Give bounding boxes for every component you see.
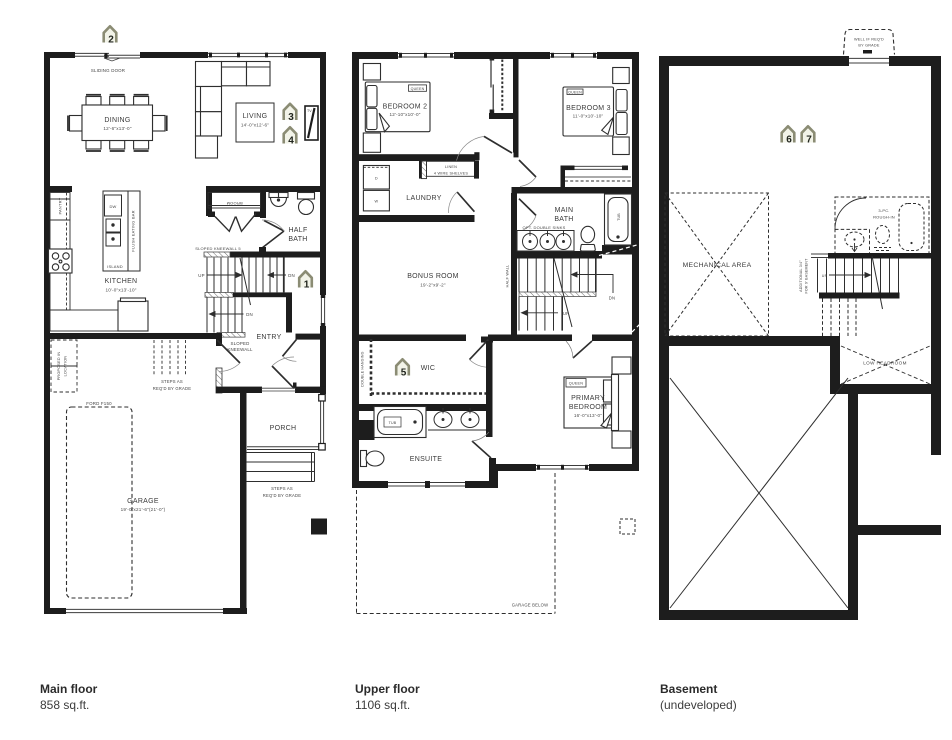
svg-text:GARAGE BELOW: GARAGE BELOW bbox=[512, 603, 549, 608]
svg-text:SLOPED: SLOPED bbox=[230, 341, 249, 346]
svg-text:HALF WALL: HALF WALL bbox=[506, 265, 510, 288]
svg-text:SLOPED KNEEWALL 5: SLOPED KNEEWALL 5 bbox=[195, 246, 241, 251]
svg-text:BEDROOM 2: BEDROOM 2 bbox=[383, 104, 428, 111]
svg-text:BONUS ROOM: BONUS ROOM bbox=[407, 273, 459, 280]
svg-text:ISLAND: ISLAND bbox=[107, 264, 123, 269]
svg-text:W: W bbox=[375, 200, 379, 204]
svg-text:FORD F150: FORD F150 bbox=[86, 401, 112, 406]
svg-text:PANTRY: PANTRY bbox=[58, 197, 63, 214]
svg-text:2: 2 bbox=[108, 35, 114, 46]
svg-text:UP: UP bbox=[198, 273, 205, 278]
svg-text:LAUNDRY: LAUNDRY bbox=[406, 195, 441, 202]
svg-text:BY GRADE: BY GRADE bbox=[858, 44, 879, 48]
svg-text:D: D bbox=[375, 177, 378, 181]
svg-text:HALF: HALF bbox=[288, 227, 307, 234]
svg-text:7: 7 bbox=[806, 135, 812, 146]
svg-text:STEPS AS: STEPS AS bbox=[271, 486, 293, 491]
svg-text:LIVING: LIVING bbox=[243, 113, 268, 120]
svg-text:WELL IF REQ'D: WELL IF REQ'D bbox=[854, 38, 884, 42]
svg-text:QUEEN: QUEEN bbox=[569, 382, 584, 386]
svg-text:KITCHEN: KITCHEN bbox=[105, 278, 138, 285]
svg-text:UP: UP bbox=[822, 274, 828, 278]
svg-text:DN: DN bbox=[288, 273, 295, 278]
svg-text:LOCATION: LOCATION bbox=[64, 356, 68, 377]
svg-text:BATH: BATH bbox=[554, 216, 573, 223]
svg-text:DINING: DINING bbox=[104, 117, 130, 124]
svg-text:10'-0"x13'-10": 10'-0"x13'-10" bbox=[105, 288, 136, 293]
svg-text:DN: DN bbox=[609, 296, 615, 301]
svg-text:DW: DW bbox=[109, 204, 116, 209]
svg-text:PORCH: PORCH bbox=[270, 425, 297, 432]
svg-text:SLIDING DOOR: SLIDING DOOR bbox=[91, 68, 125, 73]
svg-text:BATH: BATH bbox=[288, 236, 307, 243]
svg-text:REQ'D BY GRADE: REQ'D BY GRADE bbox=[263, 493, 301, 498]
svg-text:REQ'D BY GRADE: REQ'D BY GRADE bbox=[153, 386, 191, 391]
svg-text:TV: TV bbox=[307, 109, 312, 113]
svg-text:QUEEN: QUEEN bbox=[568, 90, 582, 94]
svg-text:MAIN: MAIN bbox=[555, 207, 574, 214]
svg-text:(undeveloped): (undeveloped) bbox=[660, 698, 737, 712]
svg-text:BROOM: BROOM bbox=[226, 201, 242, 206]
svg-text:16'-0"x13'-0": 16'-0"x13'-0" bbox=[574, 413, 602, 418]
svg-text:12'-10"x10'-0": 12'-10"x10'-0" bbox=[389, 112, 420, 117]
svg-text:DOUBLE HANGING: DOUBLE HANGING bbox=[361, 351, 365, 386]
svg-text:QUEEN: QUEEN bbox=[411, 87, 425, 91]
svg-text:STEPS AS: STEPS AS bbox=[161, 379, 183, 384]
svg-text:PRIMARY: PRIMARY bbox=[571, 395, 605, 402]
svg-text:ROUGH-IN: ROUGH-IN bbox=[873, 215, 895, 220]
svg-text:5: 5 bbox=[401, 368, 407, 379]
svg-text:MECHANICAL AREA: MECHANICAL AREA bbox=[683, 262, 752, 269]
svg-text:3-PC.: 3-PC. bbox=[878, 208, 889, 213]
svg-text:858 sq.ft.: 858 sq.ft. bbox=[40, 698, 89, 712]
svg-text:DN: DN bbox=[246, 312, 253, 317]
svg-text:TUB: TUB bbox=[389, 421, 397, 425]
svg-text:ADDITIONAL 3/4": ADDITIONAL 3/4" bbox=[799, 260, 803, 292]
svg-text:LOW HEADROOM: LOW HEADROOM bbox=[863, 361, 907, 366]
svg-text:11'-0"x10'-10": 11'-0"x10'-10" bbox=[573, 114, 604, 119]
svg-text:12'-6"x13'-0": 12'-6"x13'-0" bbox=[103, 126, 131, 131]
svg-text:3: 3 bbox=[288, 112, 294, 123]
svg-text:FLUSH EATING BAR: FLUSH EATING BAR bbox=[131, 210, 136, 251]
svg-text:4: 4 bbox=[288, 136, 294, 147]
svg-text:OPT. DOUBLE SINKS: OPT. DOUBLE SINKS bbox=[523, 225, 566, 230]
svg-text:GARAGE: GARAGE bbox=[127, 498, 159, 505]
svg-text:1106 sq.ft.: 1106 sq.ft. bbox=[355, 698, 410, 712]
svg-text:Basement: Basement bbox=[660, 682, 717, 696]
svg-text:WIC: WIC bbox=[421, 365, 436, 372]
svg-text:BEDROOM: BEDROOM bbox=[569, 404, 607, 411]
svg-text:14'-0"x12'-6": 14'-0"x12'-6" bbox=[241, 123, 269, 128]
svg-text:Upper floor: Upper floor bbox=[355, 682, 420, 696]
svg-text:PROPOSED IN: PROPOSED IN bbox=[57, 352, 61, 381]
svg-text:LINEN: LINEN bbox=[445, 165, 457, 169]
svg-text:Main floor: Main floor bbox=[40, 682, 98, 696]
svg-text:4 WIRE SHELVES: 4 WIRE SHELVES bbox=[434, 171, 468, 175]
svg-text:FOR 9' BASEMENT: FOR 9' BASEMENT bbox=[805, 258, 809, 294]
svg-text:ENSUITE: ENSUITE bbox=[410, 456, 442, 463]
svg-text:19'-2"x9'-2": 19'-2"x9'-2" bbox=[420, 283, 446, 288]
svg-text:ENTRY: ENTRY bbox=[256, 334, 281, 341]
svg-text:1: 1 bbox=[304, 280, 310, 291]
svg-text:BEDROOM 3: BEDROOM 3 bbox=[566, 105, 611, 112]
svg-text:TUB: TUB bbox=[617, 213, 621, 221]
svg-text:19'-0"x21'-6"(21'-0"): 19'-0"x21'-6"(21'-0") bbox=[121, 507, 166, 512]
svg-text:6: 6 bbox=[786, 135, 792, 146]
svg-text:KNEEWALL: KNEEWALL bbox=[227, 347, 253, 352]
svg-text:UP: UP bbox=[563, 311, 569, 316]
